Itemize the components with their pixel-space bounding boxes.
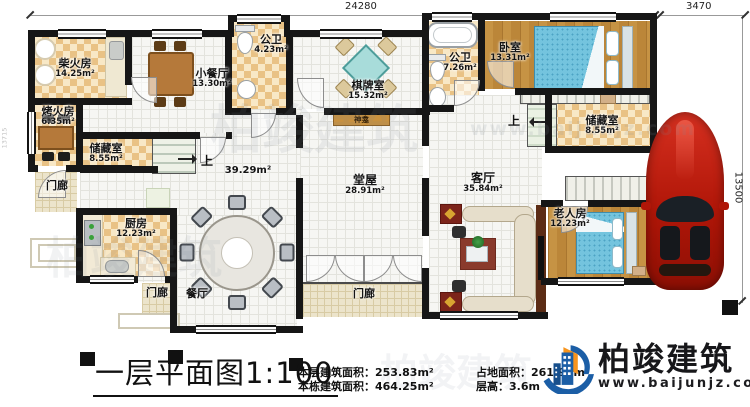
- headboard: [622, 26, 633, 90]
- window: [432, 12, 472, 22]
- stairs-up-label-right: 上: [508, 112, 520, 129]
- wall: [28, 165, 38, 172]
- room-label-bedroom: 卧室 13.31m²: [490, 42, 529, 64]
- dimension-tick: [738, 297, 746, 305]
- room-label-small-dining: 小餐厅 13.30m²: [192, 68, 231, 90]
- room-label-bath2: 公卫 7.26m²: [443, 52, 477, 74]
- window: [440, 311, 518, 320]
- stove-pot-1: [34, 38, 56, 60]
- room-label-storage-right: 储藏室 8.55m²: [585, 115, 619, 137]
- dimension-topright-label: 3470: [686, 1, 711, 12]
- lazy-susan: [221, 237, 253, 269]
- wall: [541, 200, 563, 207]
- sofa-right: [514, 214, 536, 306]
- window: [558, 277, 624, 286]
- room-label-main-hall: 堂屋 28.91m²: [345, 174, 384, 197]
- cushion: [452, 280, 466, 292]
- pillow: [606, 60, 619, 85]
- wall: [545, 146, 657, 153]
- chair: [228, 195, 246, 210]
- wall: [80, 166, 158, 173]
- stairs-up-label-left: 上: [201, 152, 213, 169]
- wall: [545, 95, 552, 153]
- wall: [422, 282, 429, 319]
- floor-plan: 24280 3470 13500 13715: [0, 0, 750, 407]
- headboard: [626, 212, 637, 274]
- pillow: [612, 246, 623, 268]
- porch-center-label: 门廊: [353, 288, 375, 300]
- window: [320, 29, 382, 39]
- room-label-mahjong: 棋牌室 15.32m²: [348, 80, 387, 102]
- wall: [290, 108, 296, 115]
- wall: [76, 208, 83, 283]
- room-label-living: 客厅 35.84m²: [463, 172, 502, 195]
- wall: [296, 115, 303, 148]
- toilet-tank: [235, 25, 255, 32]
- window: [27, 112, 36, 154]
- stat-building-area: 本栋建筑面积：464.25m²: [298, 380, 434, 394]
- pillow: [612, 218, 623, 240]
- wall: [422, 178, 429, 236]
- window: [550, 12, 616, 22]
- dimension-right-label: 13500: [732, 172, 743, 204]
- wall: [76, 208, 177, 215]
- brand-text: 柏竣建筑 www.baijunjz.com: [598, 342, 750, 391]
- title-text: 一层平面图: [95, 356, 245, 390]
- nightstand: [632, 266, 646, 276]
- window: [152, 29, 202, 39]
- burner: [89, 224, 94, 229]
- wall: [225, 108, 251, 115]
- washbasin-icon: [237, 80, 256, 99]
- wall: [422, 95, 429, 146]
- wall: [296, 215, 303, 286]
- cushion: [452, 226, 466, 238]
- car: [646, 112, 724, 290]
- window: [58, 29, 106, 39]
- chair: [180, 244, 195, 262]
- room-label-dining: 餐厅: [186, 288, 208, 300]
- chair: [280, 244, 295, 262]
- wall: [80, 132, 200, 139]
- stove-pot-2: [34, 64, 56, 86]
- chair: [154, 41, 166, 51]
- wall: [515, 88, 657, 95]
- room-label-kitchen: 厨房 12.23m²: [116, 218, 155, 240]
- pillow: [606, 31, 619, 56]
- wall: [296, 282, 303, 319]
- dimension-left-label: 13715: [0, 128, 8, 149]
- brand-logo-icon: [540, 338, 594, 394]
- room-label-fire-room: 烤火房 6.35m²: [41, 106, 75, 128]
- car-mirror: [641, 202, 651, 210]
- car-seat: [660, 226, 680, 260]
- dimension-line-right: [742, 15, 743, 303]
- dimension-line-topright: [660, 15, 746, 16]
- window: [237, 14, 281, 24]
- room-label-bath1: 公卫 4.23m²: [254, 34, 288, 56]
- stats-column-1: 本层建筑面积：253.83m² 本栋建筑面积：464.25m²: [298, 366, 434, 394]
- porch-left-steps-inner: [38, 244, 76, 262]
- stairs-left: [152, 138, 196, 174]
- wall: [165, 276, 177, 283]
- wall: [170, 215, 177, 333]
- wall: [226, 132, 232, 139]
- plant-icon: [472, 236, 484, 248]
- chair: [228, 295, 246, 310]
- bed-sheet-fold: [580, 26, 604, 90]
- brand-url: www.baijunjz.com: [598, 376, 750, 391]
- car-seat: [690, 226, 710, 260]
- tv-icon: [538, 236, 544, 280]
- car-mirror: [719, 202, 729, 210]
- car-windshield: [656, 196, 714, 222]
- chair: [42, 152, 54, 161]
- burner: [89, 235, 94, 240]
- washbasin-icon: [429, 87, 446, 107]
- stairs-right-arrowhead: [524, 117, 534, 127]
- bathtub-inner: [433, 27, 472, 43]
- car-hood-highlight: [676, 120, 694, 180]
- chair: [174, 41, 186, 51]
- dimension-tick: [741, 11, 749, 19]
- brand-name: 柏竣建筑: [598, 342, 750, 376]
- hall-area-label: 39.29m²: [225, 165, 271, 176]
- room-label-firewood: 柴火房 14.25m²: [55, 58, 94, 80]
- car-rear-window: [659, 264, 711, 276]
- chair: [174, 97, 186, 107]
- dimension-top-label: 24280: [345, 1, 377, 12]
- window: [196, 325, 276, 334]
- room-label-storage-left: 储藏室 8.55m²: [89, 143, 123, 165]
- stat-floor-area: 本层建筑面积：253.83m²: [298, 366, 434, 380]
- sofa-bottom: [462, 296, 534, 312]
- brand-logo-block: 柏竣建筑 www.baijunjz.com: [540, 338, 750, 394]
- sink-icon: [105, 260, 129, 273]
- coffee-table: [466, 246, 488, 262]
- fire-room-table: [38, 126, 74, 150]
- column-marker: [722, 300, 738, 315]
- stairs-right-lower: [565, 176, 650, 201]
- window: [90, 275, 134, 284]
- porch-left-label: 门廊: [46, 180, 68, 192]
- sink-icon: [109, 41, 124, 60]
- room-label-elder: 老人房 12.23m²: [550, 208, 589, 230]
- chair: [58, 152, 70, 161]
- wall: [324, 108, 430, 115]
- cabinet: [146, 188, 170, 208]
- porch-bottomleft-label: 门廊: [146, 287, 168, 299]
